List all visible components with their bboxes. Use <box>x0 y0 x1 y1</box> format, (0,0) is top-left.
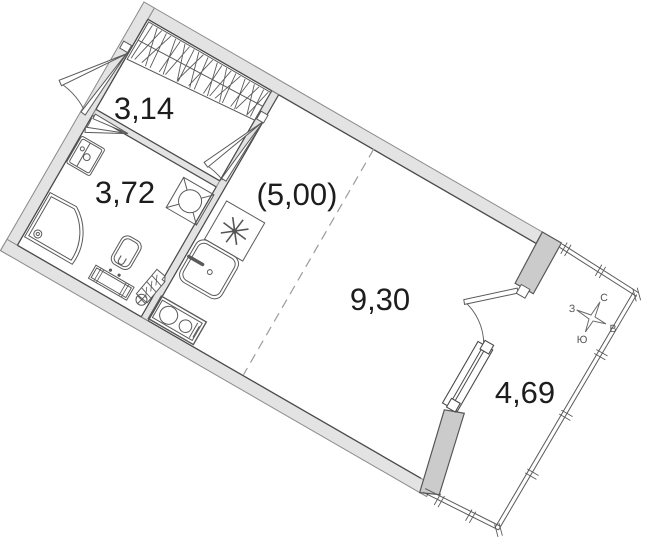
svg-text:9,30: 9,30 <box>350 282 410 317</box>
svg-text:З: З <box>569 303 575 315</box>
svg-text:3,72: 3,72 <box>95 175 155 210</box>
svg-text:В: В <box>609 323 616 335</box>
svg-text:(5,00): (5,00) <box>256 177 337 212</box>
svg-text:4,69: 4,69 <box>495 375 555 410</box>
svg-text:Ю: Ю <box>577 334 588 346</box>
svg-text:С: С <box>600 292 608 304</box>
svg-text:3,14: 3,14 <box>114 91 174 126</box>
